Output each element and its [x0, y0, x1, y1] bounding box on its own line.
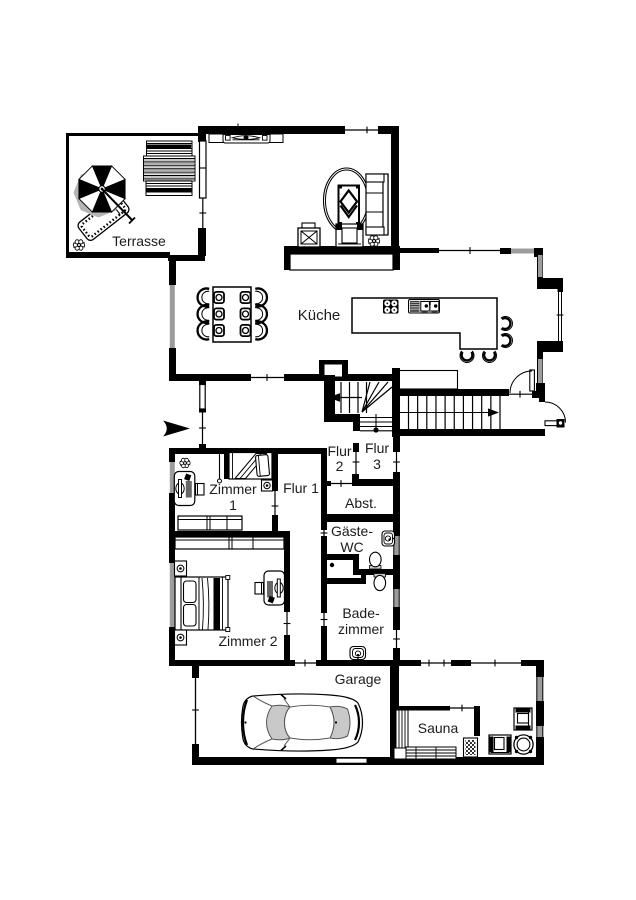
- svg-text:zimmer: zimmer: [338, 621, 384, 637]
- svg-text:Zimmer 2: Zimmer 2: [218, 633, 277, 649]
- svg-text:Gäste-: Gäste-: [331, 523, 373, 539]
- svg-text:1: 1: [229, 497, 237, 513]
- svg-text:Zimmer: Zimmer: [209, 481, 257, 497]
- svg-text:Terrasse: Terrasse: [112, 233, 166, 249]
- svg-text:WC: WC: [340, 539, 363, 555]
- svg-text:2: 2: [336, 458, 344, 474]
- svg-text:3: 3: [373, 456, 381, 472]
- svg-text:Flur 1: Flur 1: [283, 480, 319, 496]
- svg-text:Flur: Flur: [365, 440, 389, 456]
- svg-text:Garage: Garage: [335, 671, 382, 687]
- svg-text:Flur: Flur: [327, 443, 351, 459]
- svg-text:Küche: Küche: [298, 307, 341, 324]
- svg-text:Sauna: Sauna: [418, 720, 459, 736]
- svg-text:Abst.: Abst.: [345, 495, 377, 511]
- svg-text:Bade-: Bade-: [342, 605, 380, 621]
